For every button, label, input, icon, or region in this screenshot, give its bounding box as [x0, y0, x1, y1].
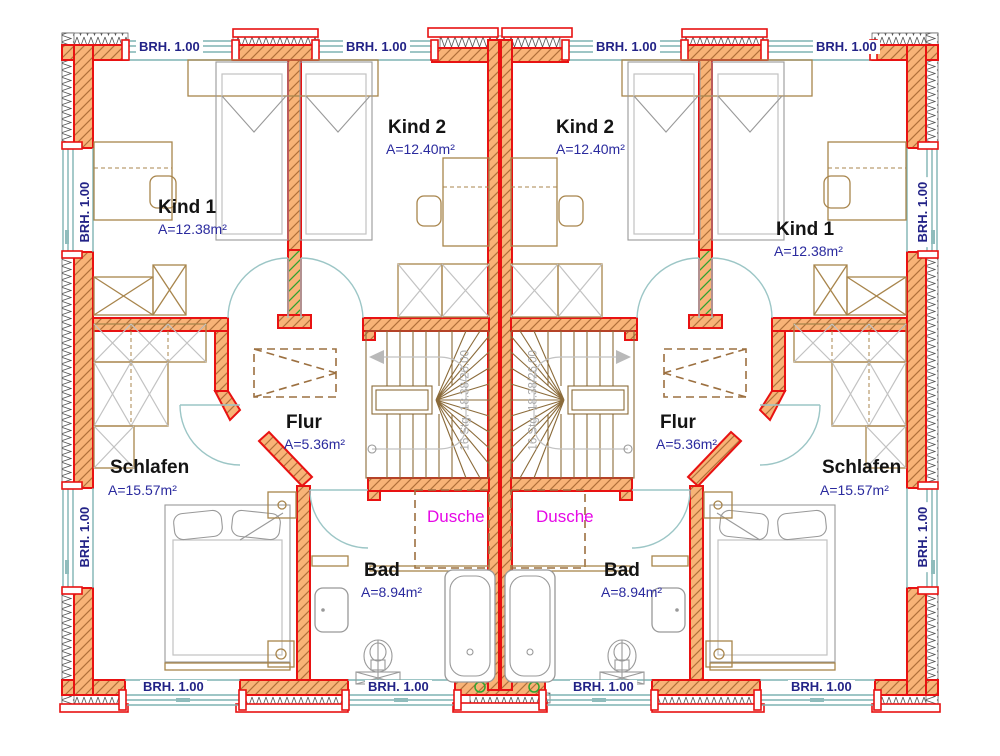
room-area-kind2-left: A=12.40m² — [386, 142, 455, 157]
room-label-kind1-right: Kind 1 — [776, 220, 834, 241]
room-area-schlafen-left: A=15.57m² — [108, 483, 177, 498]
room-label-flur-left: Flur — [286, 413, 322, 434]
room-area-kind1-left: A=12.38m² — [158, 222, 227, 237]
room-area-bad-left: A=8.94m² — [361, 585, 422, 600]
parapet-label-top-3: BRH. 1.00 — [593, 40, 660, 54]
room-label-kind2-right: Kind 2 — [556, 118, 614, 139]
room-label-kind1-left: Kind 1 — [158, 198, 216, 219]
parapet-label-right-2: BRH. 1.00 — [916, 502, 930, 572]
room-label-schlafen-right: Schlafen — [822, 458, 901, 479]
room-area-flur-left: A=5.36m² — [284, 437, 345, 452]
room-area-flur-right: A=5.36m² — [656, 437, 717, 452]
room-label-bad-right: Bad — [604, 561, 640, 582]
room-label-dusche-right: Dusche — [536, 508, 594, 527]
room-label-kind2-left: Kind 2 — [388, 118, 446, 139]
floor-plan: Kind 1 A=12.38m² Kind 2 A=12.40m² Kind 2… — [0, 0, 1000, 756]
floor-plan-drawing — [0, 0, 1000, 756]
room-label-schlafen-left: Schlafen — [110, 458, 189, 479]
parapet-label-top-4: BRH. 1.00 — [813, 40, 880, 54]
room-label-dusche-left: Dusche — [427, 508, 485, 527]
room-area-schlafen-right: A=15.57m² — [820, 483, 889, 498]
parapet-label-bottom-4: BRH. 1.00 — [788, 680, 855, 694]
parapet-label-left-2: BRH. 1.00 — [78, 502, 92, 572]
stair-annotation-left: 16 Stg. 18.38/26.00 — [460, 334, 473, 466]
parapet-label-bottom-3: BRH. 1.00 — [570, 680, 637, 694]
parapet-label-left-1: BRH. 1.00 — [78, 177, 92, 247]
stair-direction-arrow — [616, 350, 631, 364]
room-area-kind2-right: A=12.40m² — [556, 142, 625, 157]
stair-direction-arrow — [369, 350, 384, 364]
parapet-label-right-1: BRH. 1.00 — [916, 177, 930, 247]
room-label-bad-left: Bad — [364, 561, 400, 582]
parapet-label-top-2: BRH. 1.00 — [343, 40, 410, 54]
parapet-label-top-1: BRH. 1.00 — [136, 40, 203, 54]
room-label-flur-right: Flur — [660, 413, 696, 434]
parapet-label-bottom-2: BRH. 1.00 — [365, 680, 432, 694]
stair-annotation-right: 16 Stg. 18.38/26.00 — [528, 334, 541, 466]
parapet-label-bottom-1: BRH. 1.00 — [140, 680, 207, 694]
room-area-kind1-right: A=12.38m² — [774, 244, 843, 259]
room-area-bad-right: A=8.94m² — [601, 585, 662, 600]
